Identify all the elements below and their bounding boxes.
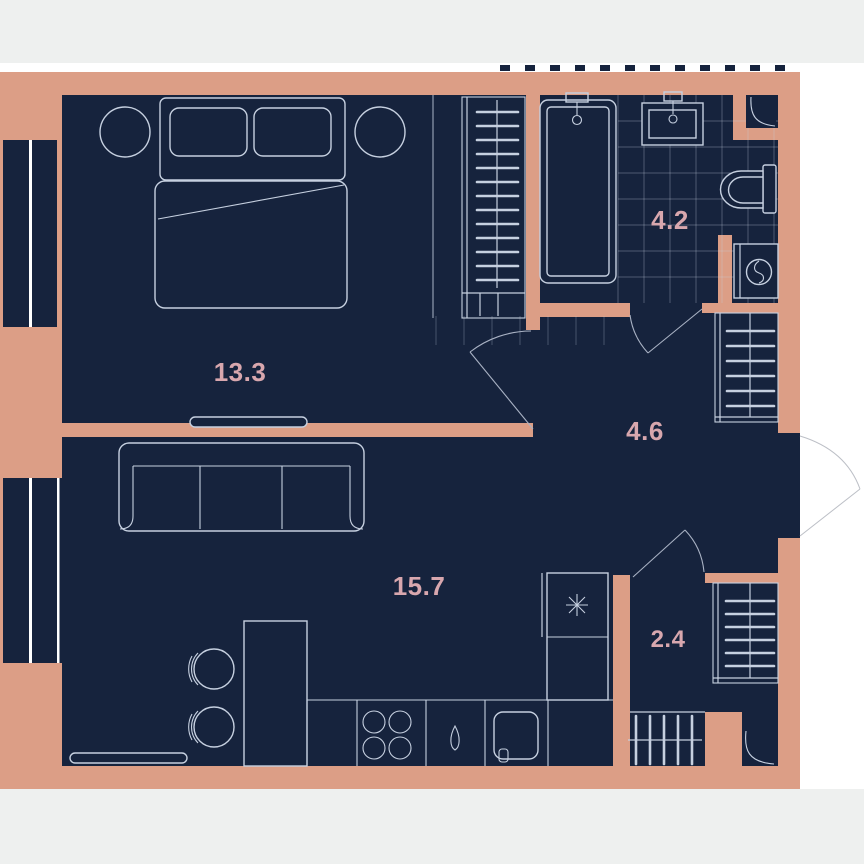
- entrance-door-opening: [778, 433, 800, 538]
- room-label-wardrobe: 2.4: [651, 626, 686, 653]
- floor-plan-drawing: 13.3 4.2 4.6 15.7 2.4: [0, 0, 864, 864]
- snowflake-icon: [566, 594, 588, 616]
- room-label-hallway: 4.6: [626, 416, 664, 446]
- entrance-door-swing: [800, 436, 860, 536]
- living-room-window: [3, 478, 62, 663]
- room-label-bathroom: 4.2: [651, 205, 689, 235]
- corner-duct-top: [746, 95, 776, 128]
- bedroom-window: [3, 140, 57, 327]
- washing-machine: [734, 244, 778, 298]
- floor-plan-image: 13.3 4.2 4.6 15.7 2.4: [0, 0, 864, 864]
- corner-duct-bottom: [742, 728, 778, 766]
- top-tick-marks: [500, 65, 785, 71]
- bedroom-tv-console: [190, 417, 307, 427]
- bathtub: [540, 93, 616, 283]
- living-tv-console: [70, 753, 187, 763]
- room-label-living-kitchen: 15.7: [393, 571, 446, 601]
- room-label-bedroom: 13.3: [214, 357, 267, 387]
